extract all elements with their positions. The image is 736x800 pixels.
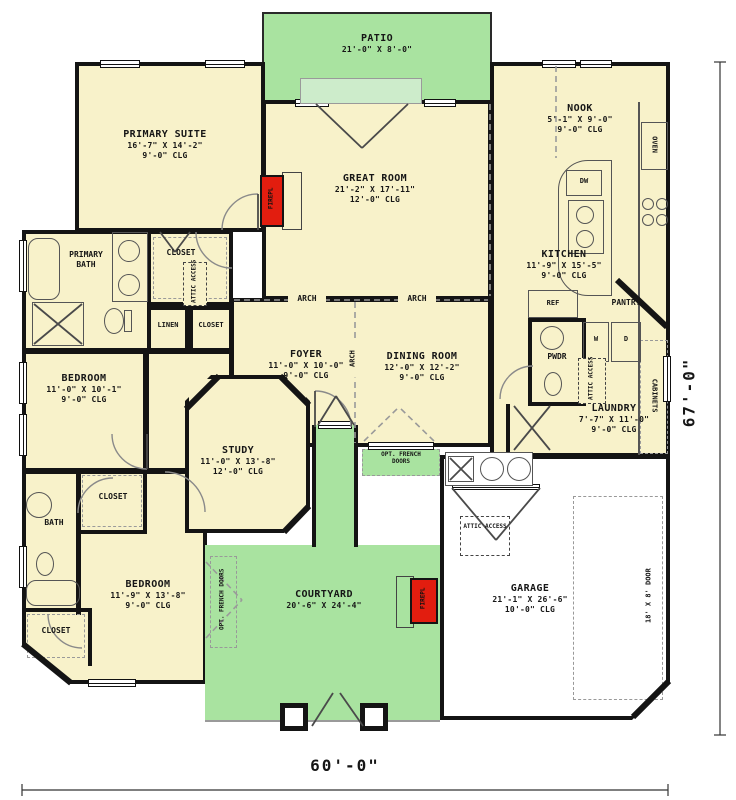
door-sill <box>368 442 434 450</box>
patio-stoop <box>300 78 422 104</box>
fireplace-label: FIREPL <box>421 576 428 620</box>
bedroom1-room <box>22 350 147 472</box>
foyer-label: FOYER 11'-0" X 10'-0" 9'-0" CLG <box>258 348 354 382</box>
fireplace-label: FIREPL <box>269 176 276 220</box>
door-sill <box>318 421 352 429</box>
sink <box>540 326 564 350</box>
ref-label: REF <box>528 299 578 308</box>
window <box>88 679 136 687</box>
sink <box>576 230 594 248</box>
oven-label: OVEN <box>649 120 658 170</box>
dw-label: DW <box>566 177 602 186</box>
attic-access-box <box>460 516 510 556</box>
courtyard-area <box>205 545 440 722</box>
wall <box>22 608 90 612</box>
height-dimension: 67'-0" <box>680 342 701 442</box>
closet-label: CLOSET <box>150 248 212 258</box>
window <box>19 546 27 588</box>
wall <box>88 608 92 666</box>
great-room-label: GREAT ROOM 21'-2" X 17'-11" 12'-0" CLG <box>300 172 450 206</box>
shower <box>32 302 84 346</box>
primary-suite-label: PRIMARY SUITE 16'-7" X 14'-2" 9'-0" CLG <box>90 128 240 162</box>
window <box>580 60 612 68</box>
dryer-label: D <box>611 335 641 344</box>
closet-label: CLOSET <box>26 626 86 636</box>
courtyard-label: COURTYARD 20'-6" X 24'-4" <box>252 588 396 611</box>
window <box>205 60 245 68</box>
bedroom2-label: BEDROOM 11'-9" X 13'-8" 9'-0" CLG <box>92 578 204 612</box>
window <box>19 362 27 404</box>
sink <box>507 457 531 481</box>
linen-label: LINEN <box>147 321 189 330</box>
arch-label: ARCH <box>288 294 326 304</box>
opt-french-doors-label: OPT. FRENCH DOORS <box>220 554 227 644</box>
toilet-tank <box>124 310 132 332</box>
cooktop-burner <box>656 214 668 226</box>
garage-door-label: 18' X 8' DOOR <box>644 553 653 639</box>
utility-sink <box>448 456 474 482</box>
pantry-label: PANTRY <box>590 298 662 308</box>
wall <box>506 404 510 457</box>
study-label: STUDY 11'-0" X 13'-8" 12'-0" CLG <box>178 444 298 478</box>
attic-access-label: ATTIC ACCESS <box>589 353 596 403</box>
sink <box>26 492 52 518</box>
arch-label: ARCH <box>398 294 436 304</box>
toilet <box>544 372 562 396</box>
window <box>19 414 27 456</box>
garage-label: GARAGE 21'-1" X 26'-6" 10'-0" CLG <box>458 582 602 616</box>
dining-room-label: DINING ROOM 12'-0" X 12'-2" 9'-0" CLG <box>366 350 478 384</box>
bath-label: BATH <box>28 518 80 528</box>
wall <box>78 530 146 534</box>
floor-plan: PATIO 21'-0" X 8'-0" PRIMARY SUITE 16'-7… <box>0 0 736 800</box>
cabinets-label: CABINETS <box>649 356 658 436</box>
bedroom1-label: BEDROOM 11'-0" X 10'-1" 9'-0" CLG <box>28 372 140 406</box>
patio-label: PATIO 21'-0" X 8'-0" <box>302 32 452 55</box>
bathtub <box>26 580 80 606</box>
arch-label: ARCH <box>348 340 357 378</box>
fireplace-hearth <box>282 172 302 230</box>
primary-bath-label: PRIMARY BATH <box>58 250 114 271</box>
entry-porch <box>312 425 358 547</box>
window <box>19 240 27 292</box>
attic-access-label: ATTIC ACCESS <box>192 256 199 306</box>
kitchen-label: KITCHEN 11'-9" X 15'-5" 9'-0" CLG <box>502 248 626 282</box>
window <box>424 99 456 107</box>
cooktop-burner <box>642 214 654 226</box>
pwdr-label: PWDR <box>528 352 586 362</box>
width-dimension: 60'-0" <box>250 756 440 777</box>
toilet <box>36 552 54 576</box>
sink <box>480 457 504 481</box>
courtyard-post <box>360 703 388 731</box>
sink <box>576 206 594 224</box>
attic-access-label: ATTIC ACCESS <box>462 524 508 531</box>
closet-label: CLOSET <box>82 492 144 502</box>
window <box>100 60 140 68</box>
window <box>663 356 671 402</box>
cooktop-burner <box>656 198 668 210</box>
washer-label: W <box>583 335 609 344</box>
nook-label: NOOK 5'-1" X 9'-0" 9'-0" CLG <box>528 102 632 136</box>
sink <box>118 274 140 296</box>
sink <box>118 240 140 262</box>
window <box>542 60 576 68</box>
bathtub <box>28 238 60 300</box>
cooktop-burner <box>642 198 654 210</box>
closet-label: CLOSET <box>189 321 233 330</box>
courtyard-post <box>280 703 308 731</box>
toilet <box>104 308 124 334</box>
opt-french-doors-label: OPT. FRENCH DOORS <box>362 452 440 465</box>
